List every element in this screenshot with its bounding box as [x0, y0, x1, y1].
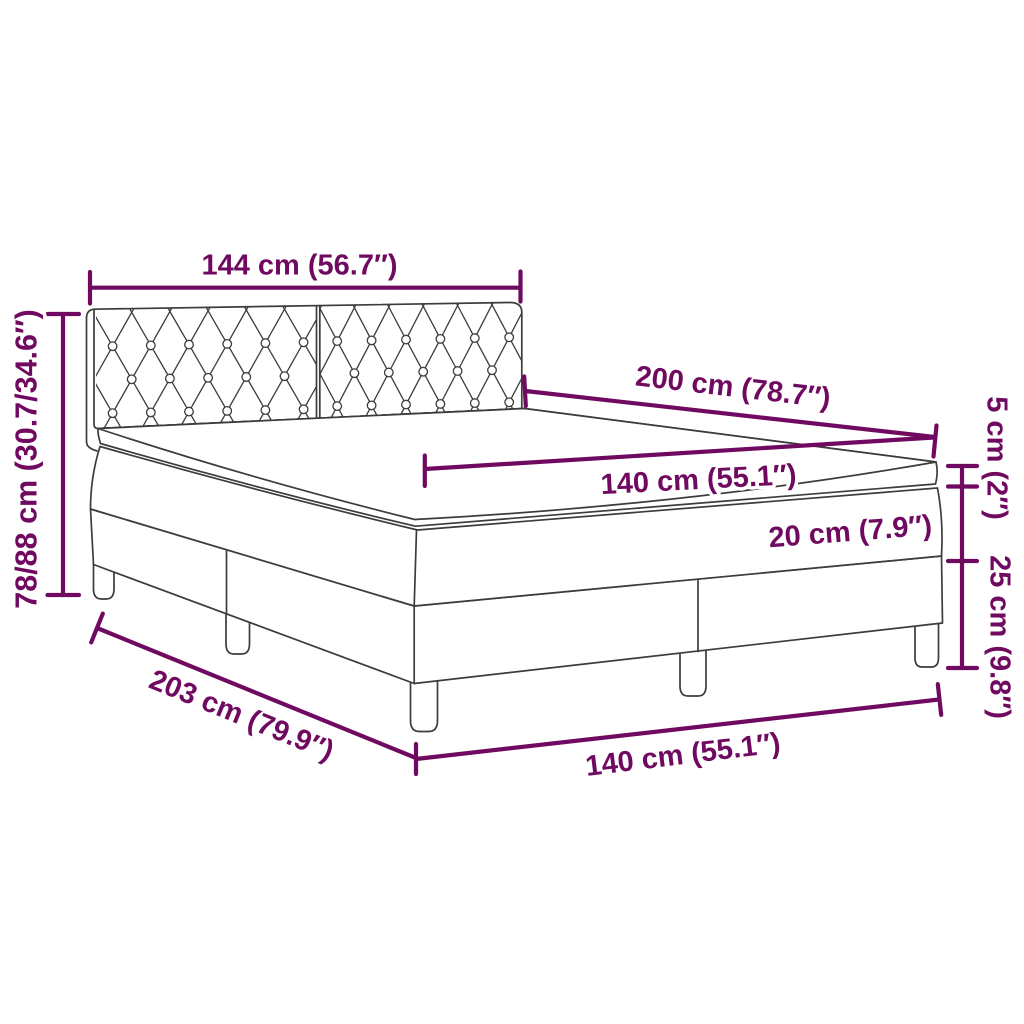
svg-text:25 cm (9.8″): 25 cm (9.8″)	[984, 555, 1016, 719]
svg-text:5 cm (2″): 5 cm (2″)	[981, 396, 1013, 520]
svg-text:144 cm (56.7″): 144 cm (56.7″)	[201, 250, 397, 282]
svg-text:78/88 cm (30.7/34.6″): 78/88 cm (30.7/34.6″)	[10, 309, 44, 608]
